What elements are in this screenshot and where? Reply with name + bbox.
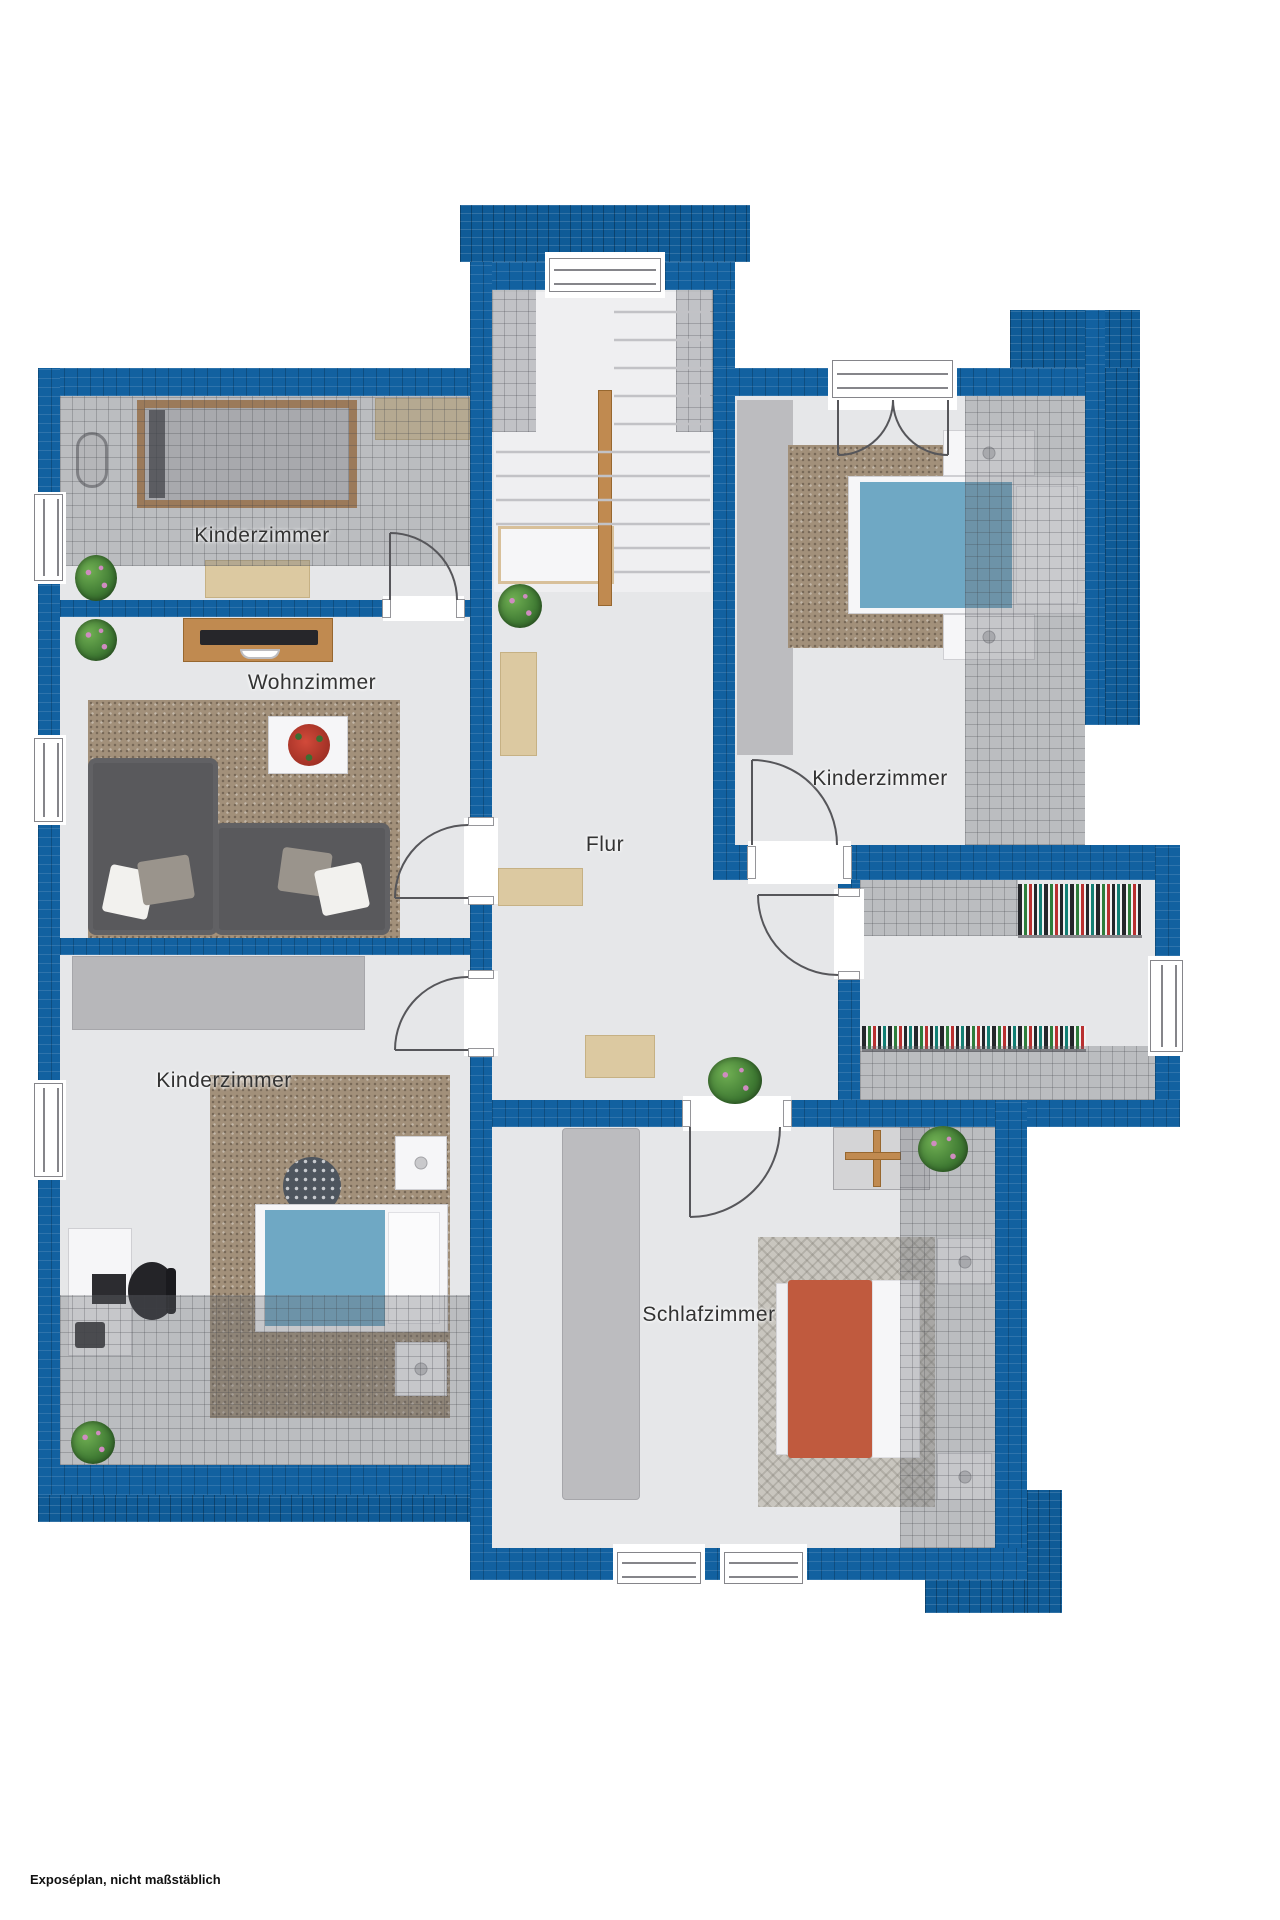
- window-schlafzimmer: [617, 1552, 701, 1584]
- roof-overhang: [38, 1495, 470, 1522]
- roof-slope-shading: [492, 290, 536, 432]
- door-wohnzimmer: [464, 818, 498, 904]
- roof-slope-shading: [965, 396, 1085, 845]
- french-window-kinderzimmer-top-right: [832, 360, 953, 398]
- sofa-pillow: [314, 862, 371, 917]
- roof-overhang: [1027, 1490, 1062, 1613]
- plant: [708, 1057, 762, 1104]
- window-wohnzimmer: [34, 738, 63, 822]
- doormat: [585, 1035, 655, 1078]
- duvet-red: [788, 1280, 872, 1458]
- room-label-wohnzimmer: Wohnzimmer: [248, 671, 376, 695]
- roof-slope-shading: [60, 1295, 470, 1465]
- clothes-rack: [1018, 884, 1142, 938]
- plant: [75, 619, 117, 661]
- plant: [918, 1126, 968, 1172]
- doormat: [498, 868, 583, 906]
- room-label-kinderzimmer-top-left: Kinderzimmer: [194, 524, 330, 548]
- wardrobe-kinderzimmer-top-right: [737, 400, 793, 755]
- nightstand: [395, 1136, 447, 1190]
- floor-plan: Kinderzimmer Wohnzimmer Kinderzimmer Flu…: [0, 0, 1280, 1920]
- door-closet: [834, 889, 864, 979]
- plan-caption: Exposéplan, nicht maßstäblich: [30, 1872, 221, 1887]
- roof-slope-shading: [676, 290, 713, 432]
- plant: [75, 555, 117, 601]
- tv-stand: [240, 649, 280, 659]
- wall: [1085, 310, 1105, 725]
- sideboard-kinderzimmer-bottom-left: [72, 956, 365, 1030]
- tv: [200, 630, 318, 645]
- door-kinderzimmer-top-left: [383, 596, 464, 621]
- runner-mat: [500, 652, 537, 756]
- door-kinderzimmer-bottom-left: [464, 971, 498, 1056]
- stair-landing: [498, 526, 614, 584]
- cabinet-schlafzimmer: [562, 1128, 640, 1500]
- room-label-kinderzimmer-top-right: Kinderzimmer: [812, 767, 948, 791]
- door-kinderzimmer-top-right: [748, 841, 851, 884]
- wall: [38, 368, 470, 396]
- roof-overhang: [1010, 310, 1140, 368]
- sofa-pillow: [137, 854, 195, 906]
- stair-stringer: [598, 390, 612, 606]
- wall: [470, 262, 492, 1553]
- room-label-schlafzimmer: Schlafzimmer: [642, 1303, 775, 1327]
- room-label-flur: Flur: [586, 833, 624, 857]
- roof-slope-shading: [860, 1046, 1155, 1100]
- flower-decoration: [288, 724, 330, 766]
- window-closet: [1150, 960, 1183, 1052]
- roof-slope-shading: [900, 1127, 995, 1548]
- bed-headboard: [776, 1283, 788, 1455]
- room-label-kinderzimmer-bottom-left: Kinderzimmer: [156, 1069, 292, 1093]
- plant: [71, 1421, 115, 1464]
- wall: [60, 938, 470, 955]
- roof-slope-shading: [860, 880, 1018, 936]
- window-stairwell: [549, 258, 661, 292]
- wardrobe-wood-trim: [845, 1152, 901, 1160]
- roof-overhang: [1105, 310, 1140, 725]
- wall: [38, 1465, 470, 1495]
- window-kinderzimmer-bottom-left: [34, 1083, 63, 1177]
- plant: [498, 584, 542, 628]
- wall: [995, 1100, 1027, 1580]
- window-schlafzimmer: [724, 1552, 803, 1584]
- window-left-kinderzimmer: [34, 494, 63, 581]
